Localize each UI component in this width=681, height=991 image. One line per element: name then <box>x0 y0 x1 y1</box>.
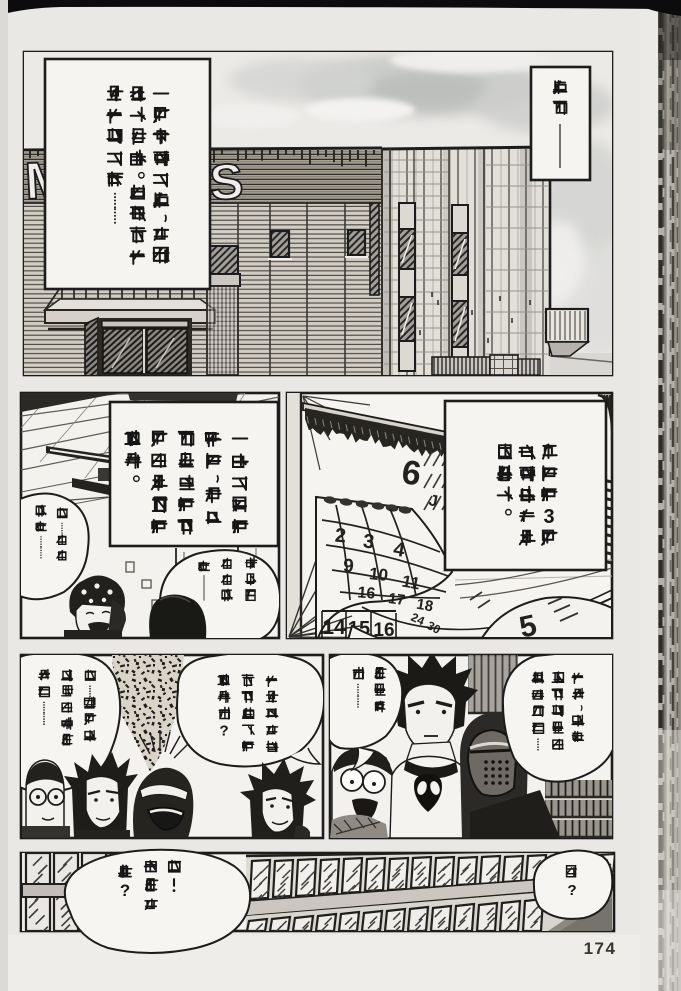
svg-text:11: 11 <box>400 572 421 594</box>
svg-text:16: 16 <box>357 584 376 602</box>
svg-text:9: 9 <box>342 556 354 578</box>
svg-text:17: 17 <box>387 590 406 609</box>
svg-text:3: 3 <box>543 506 554 528</box>
svg-text:?: ? <box>219 722 228 739</box>
svg-text:14: 14 <box>322 616 346 639</box>
svg-text:10: 10 <box>368 564 389 585</box>
svg-text:?: ? <box>567 882 576 899</box>
svg-text:3: 3 <box>362 531 375 554</box>
svg-text:2: 2 <box>334 525 347 548</box>
svg-text:174: 174 <box>584 939 617 958</box>
svg-text:?: ? <box>120 881 130 900</box>
